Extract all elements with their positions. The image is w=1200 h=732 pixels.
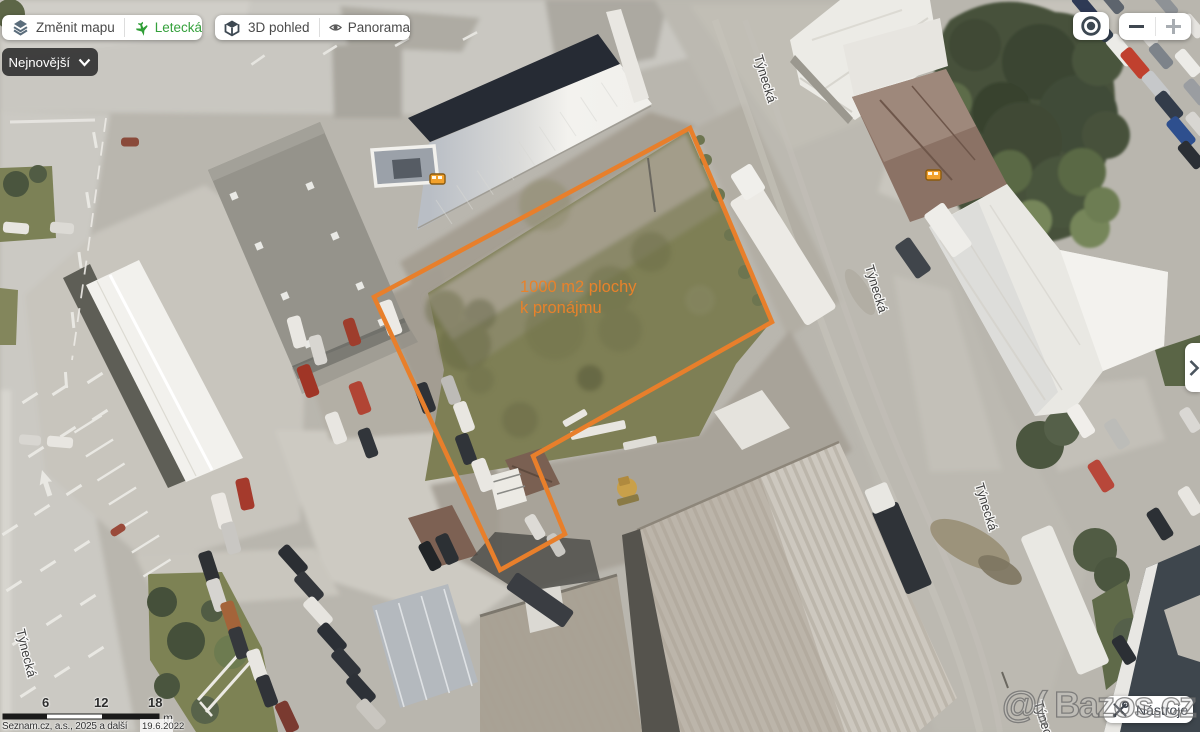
svg-text:1000 m2 plochy: 1000 m2 plochy bbox=[520, 278, 637, 296]
svg-text:k pronájmu: k pronájmu bbox=[520, 299, 602, 317]
